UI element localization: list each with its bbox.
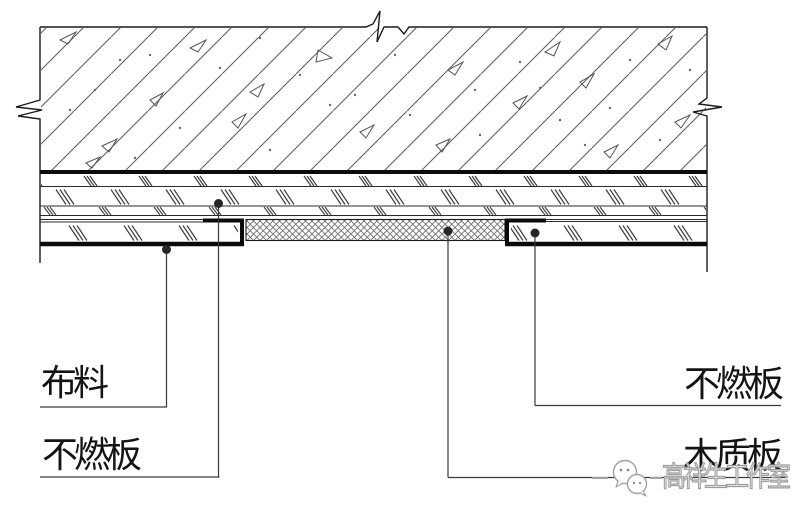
furring-layers (40, 175, 707, 216)
left-board-hatch (44, 224, 238, 242)
watermark-dash-right (650, 477, 662, 479)
left-edge-break-line (16, 27, 42, 263)
concrete-hatch (41, 28, 706, 170)
label-non-combustible-board-right: 不燃板 (684, 366, 780, 402)
detail-drawing-canvas: 布料 不燃板 不燃板 木质板 高祥生工作室 (0, 0, 798, 514)
concrete-slab (41, 28, 706, 170)
watermark-text: 高祥生工作室 (662, 464, 788, 492)
right-board-hatch (511, 224, 703, 242)
label-fabric: 布料 (41, 365, 105, 401)
layer2-wood-hatch (41, 188, 706, 205)
layer3-wood-hatch (41, 207, 706, 216)
layer1-wood-hatch (41, 175, 706, 186)
wechat-logo-icon (608, 458, 650, 498)
leader-dot-fabric (162, 245, 171, 254)
left-board (40, 219, 244, 247)
leader-dot-fireboard-left (214, 199, 223, 208)
label-non-combustible-board-left: 不燃板 (42, 437, 138, 473)
watermark-dash-left (592, 477, 608, 479)
slab-bottom-thick-line (40, 170, 707, 174)
leader-dot-fireboard-right (531, 229, 540, 238)
watermark: 高祥生工作室 (592, 458, 788, 498)
leader-dot-woodboard (444, 227, 453, 236)
mesh-infill-board (246, 220, 505, 241)
